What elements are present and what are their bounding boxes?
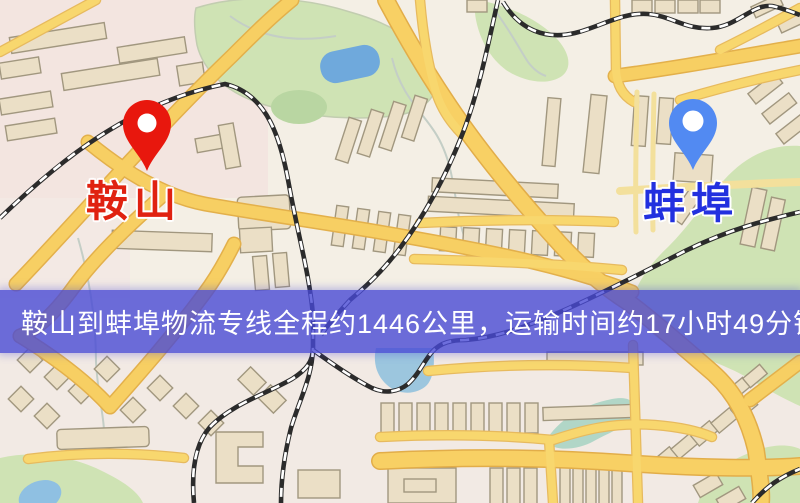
logistics-route-map: 鞍山 蚌埠 鞍山到蚌埠物流专线全程约1446公里，运输时间约17小时49分钟. (0, 0, 800, 503)
map-canvas (0, 0, 800, 503)
origin-city-label: 鞍山 (86, 181, 182, 223)
route-info-banner: 鞍山到蚌埠物流专线全程约1446公里，运输时间约17小时49分钟. (0, 290, 800, 353)
route-info-text: 鞍山到蚌埠物流专线全程约1446公里，运输时间约17小时49分钟. (0, 302, 800, 341)
destination-city-label: 蚌埠 (643, 183, 739, 225)
